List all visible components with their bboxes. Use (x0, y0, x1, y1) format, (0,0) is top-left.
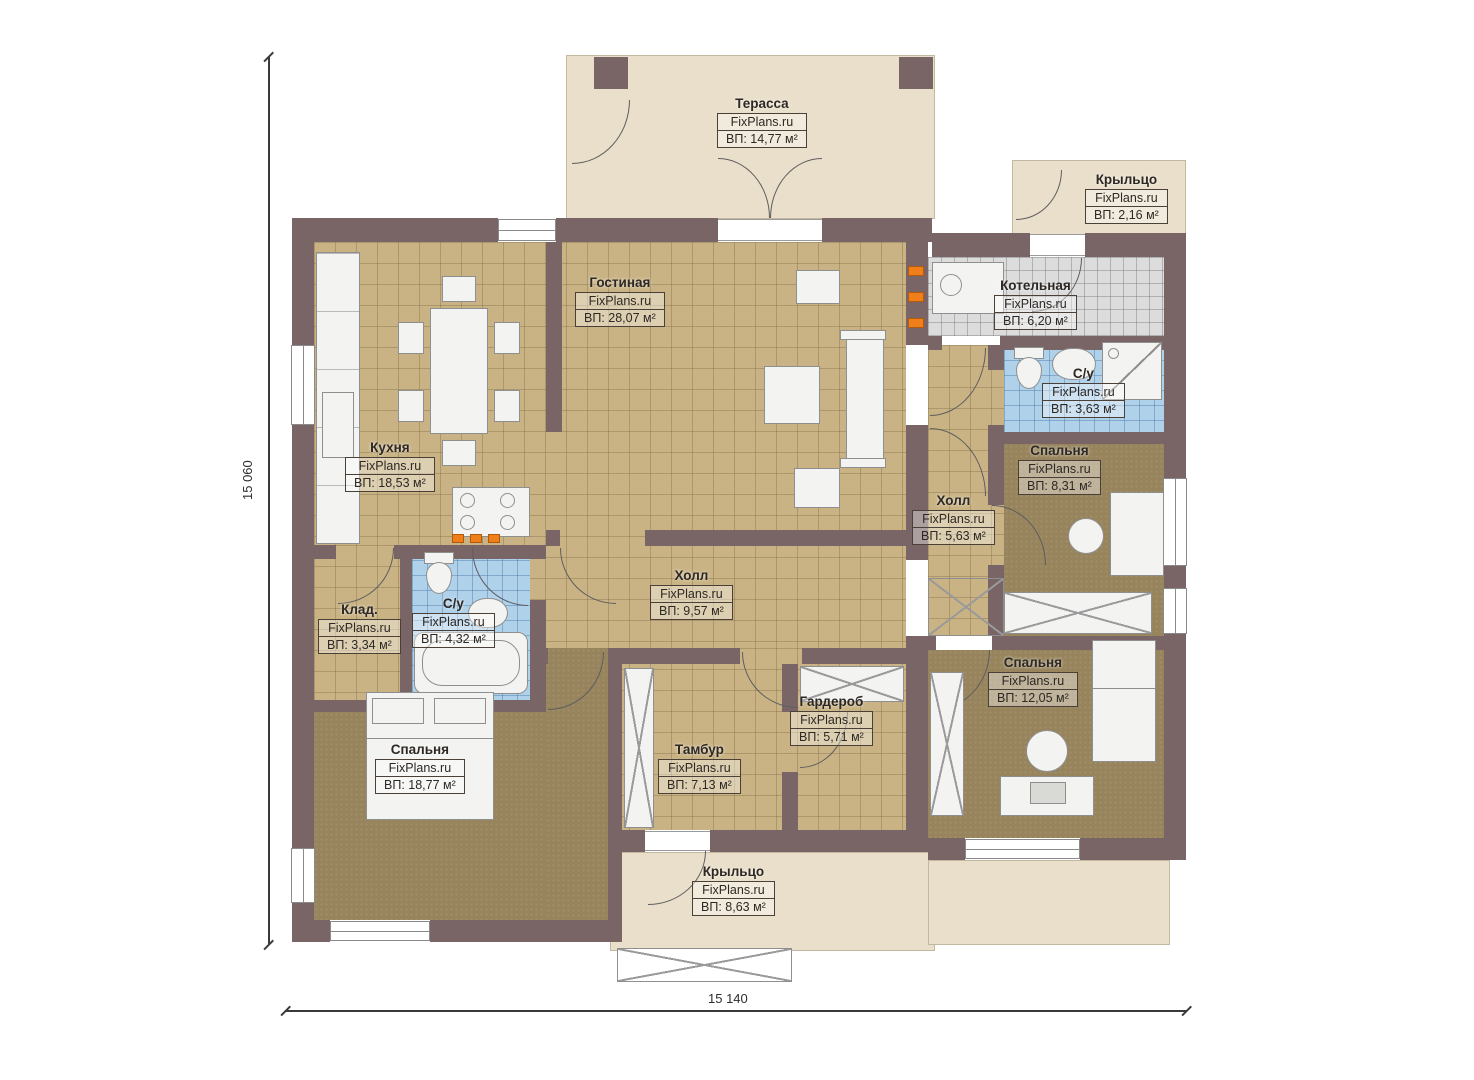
pillow (372, 698, 424, 724)
room-area: ВП: 18,53 м² (346, 474, 434, 491)
brand-label: FixPlans.ru (989, 673, 1077, 689)
porch-steps (617, 948, 792, 982)
desk (1110, 492, 1164, 576)
wall (556, 218, 718, 242)
room-area: ВП: 4,32 м² (413, 630, 494, 647)
pillow (434, 698, 486, 724)
brand-label: FixPlans.ru (1043, 384, 1124, 400)
sofa-armrest (840, 330, 886, 340)
room-area: ВП: 8,31 м² (1019, 477, 1100, 494)
wall (1164, 634, 1186, 858)
chair (442, 276, 476, 302)
room-name: Гостиная (575, 275, 665, 290)
room-name: Тамбур (658, 742, 741, 757)
stove-burner (460, 493, 475, 508)
room-label-bedroom-right: Спальня FixPlans.ruВП: 8,31 м² (1018, 443, 1101, 495)
wall (928, 838, 965, 860)
brand-label: FixPlans.ru (651, 586, 732, 602)
shower-head (1108, 348, 1119, 359)
wall (530, 648, 548, 664)
coffee-table (764, 366, 820, 424)
wall (928, 636, 936, 650)
dining-table (430, 308, 488, 434)
room-label-bedroom-se: Спальня FixPlans.ruВП: 12,05 м² (988, 655, 1078, 707)
hall-hatch-area (928, 578, 1004, 636)
wall (430, 920, 622, 942)
brand-label: FixPlans.ru (995, 296, 1076, 312)
room-name: Клад. (318, 602, 401, 617)
stove-burner (500, 515, 515, 530)
radiator-icon (908, 292, 924, 302)
room-area: ВП: 5,71 м² (791, 728, 872, 745)
window (965, 839, 1080, 859)
brand-label: FixPlans.ru (659, 760, 740, 776)
terrace-pillar (594, 57, 628, 89)
chair (494, 390, 520, 422)
wall (710, 830, 928, 852)
terrace-door-opening (718, 219, 822, 241)
brand-label: FixPlans.ru (718, 114, 806, 130)
porch-door-opening (1030, 234, 1085, 256)
dimension-label-width: 15 140 (708, 991, 748, 1006)
room-label-porch-bottom: Крыльцо FixPlans.ruВП: 8,63 м² (692, 864, 775, 916)
radiator-icon (452, 534, 464, 543)
wall (292, 920, 330, 942)
wall (314, 545, 336, 559)
wall (645, 530, 918, 546)
wall (292, 218, 498, 242)
chair (398, 390, 424, 422)
room-area: ВП: 9,57 м² (651, 602, 732, 619)
room-label-bathroom-left: С/у FixPlans.ruВП: 4,32 м² (412, 596, 495, 648)
room-name: Холл (650, 568, 733, 583)
sofa-armrest (840, 458, 886, 468)
room-area: ВП: 12,05 м² (989, 689, 1077, 706)
stove-burner (460, 515, 475, 530)
wall (906, 636, 928, 838)
window (1163, 588, 1187, 634)
room-area: ВП: 18,77 м² (376, 776, 464, 793)
window (291, 848, 315, 903)
wall (782, 772, 798, 830)
wall (992, 636, 1186, 650)
radiator-icon (488, 534, 500, 543)
wall (546, 242, 562, 432)
room-name: Крыльцо (1085, 172, 1168, 187)
window (330, 921, 430, 941)
wall (802, 648, 918, 664)
window (291, 345, 315, 425)
room-label-kitchen: Кухня FixPlans.ruВП: 18,53 м² (345, 440, 435, 492)
brand-label: FixPlans.ru (1086, 190, 1167, 206)
armchair (796, 270, 840, 304)
room-label-storage: Клад. FixPlans.ruВП: 3,34 м² (318, 602, 401, 654)
room-label-hall-main: Холл FixPlans.ruВП: 9,57 м² (650, 568, 733, 620)
brand-label: FixPlans.ru (346, 458, 434, 474)
brand-label: FixPlans.ru (376, 760, 464, 776)
bed-blanket-line (1092, 688, 1156, 689)
room-name: Холл (912, 493, 995, 508)
window (1163, 478, 1187, 566)
window (498, 219, 556, 241)
room-name: Гардероб (790, 694, 873, 709)
office-chair (1026, 730, 1068, 772)
stove-burner (500, 493, 515, 508)
brand-label: FixPlans.ru (1019, 461, 1100, 477)
terrace-area-bottom-right (928, 860, 1170, 945)
room-label-porch-top: Крыльцо FixPlans.ruВП: 2,16 м² (1085, 172, 1168, 224)
closet (624, 668, 654, 828)
room-label-bathroom-right: С/у FixPlans.ruВП: 3,63 м² (1042, 366, 1125, 418)
radiator-icon (908, 318, 924, 328)
room-area: ВП: 5,63 м² (913, 527, 994, 544)
wall (530, 545, 546, 555)
room-label-boiler-room: Котельная FixPlans.ruВП: 6,20 м² (994, 278, 1077, 330)
room-name: С/у (1042, 366, 1125, 381)
laptop (1030, 782, 1066, 804)
brand-label: FixPlans.ru (693, 882, 774, 898)
room-name: Крыльцо (692, 864, 775, 879)
sofa (846, 336, 884, 460)
room-area: ВП: 3,63 м² (1043, 400, 1124, 417)
room-area: ВП: 6,20 м² (995, 312, 1076, 329)
wall (292, 425, 314, 848)
wall (1164, 233, 1186, 478)
room-label-terrace: Терасса FixPlans.ruВП: 14,77 м² (717, 96, 807, 148)
wall (400, 558, 412, 705)
wall (1164, 566, 1186, 588)
wall (292, 218, 314, 345)
room-area: ВП: 8,63 м² (693, 898, 774, 915)
terrace-pillar (899, 57, 933, 89)
room-name: С/у (412, 596, 495, 611)
wall (1080, 838, 1186, 860)
radiator-icon (470, 534, 482, 543)
room-name: Спальня (988, 655, 1078, 670)
wardrobe-cabinet (930, 672, 964, 816)
room-label-wardrobe-room: Гардероб FixPlans.ruВП: 5,71 м² (790, 694, 873, 746)
dimension-line-vertical (268, 57, 270, 945)
room-area: ВП: 28,07 м² (576, 309, 664, 326)
room-area: ВП: 3,34 м² (319, 636, 400, 653)
room-label-vestibule: Тамбур FixPlans.ruВП: 7,13 м² (658, 742, 741, 794)
single-bed (1092, 640, 1156, 762)
room-label-living-room: Гостиная FixPlans.ruВП: 28,07 м² (575, 275, 665, 327)
room-label-hall-right: Холл FixPlans.ruВП: 5,63 м² (912, 493, 995, 545)
chair (442, 440, 476, 466)
room-label-bedroom-sw: Спальня FixPlans.ruВП: 18,77 м² (375, 742, 465, 794)
room-name: Терасса (717, 96, 807, 111)
dimension-line-horizontal (285, 1010, 1186, 1012)
room-name: Котельная (994, 278, 1077, 293)
porch-door-opening (645, 831, 710, 851)
brand-label: FixPlans.ru (319, 620, 400, 636)
room-area: ВП: 14,77 м² (718, 130, 806, 147)
room-name: Спальня (1018, 443, 1101, 458)
office-chair (1068, 518, 1104, 554)
dimension-label-height: 15 060 (240, 460, 255, 500)
wall (608, 648, 740, 664)
floor-plan-canvas: 15 060 15 140 (0, 0, 1474, 1080)
wall (932, 233, 1030, 257)
wall (822, 218, 932, 242)
chair (398, 322, 424, 354)
room-name: Спальня (375, 742, 465, 757)
boiler-dial (940, 274, 962, 296)
brand-label: FixPlans.ru (913, 511, 994, 527)
armchair (794, 468, 840, 508)
brand-label: FixPlans.ru (576, 293, 664, 309)
wall (546, 530, 560, 546)
brand-label: FixPlans.ru (791, 712, 872, 728)
radiator-icon (908, 266, 924, 276)
chair (494, 322, 520, 354)
room-area: ВП: 7,13 м² (659, 776, 740, 793)
bed-blanket-line (366, 738, 494, 739)
wall (608, 664, 622, 920)
room-area: ВП: 2,16 м² (1086, 206, 1167, 223)
wardrobe-cabinet (1004, 592, 1152, 634)
brand-label: FixPlans.ru (413, 614, 494, 630)
room-name: Кухня (345, 440, 435, 455)
